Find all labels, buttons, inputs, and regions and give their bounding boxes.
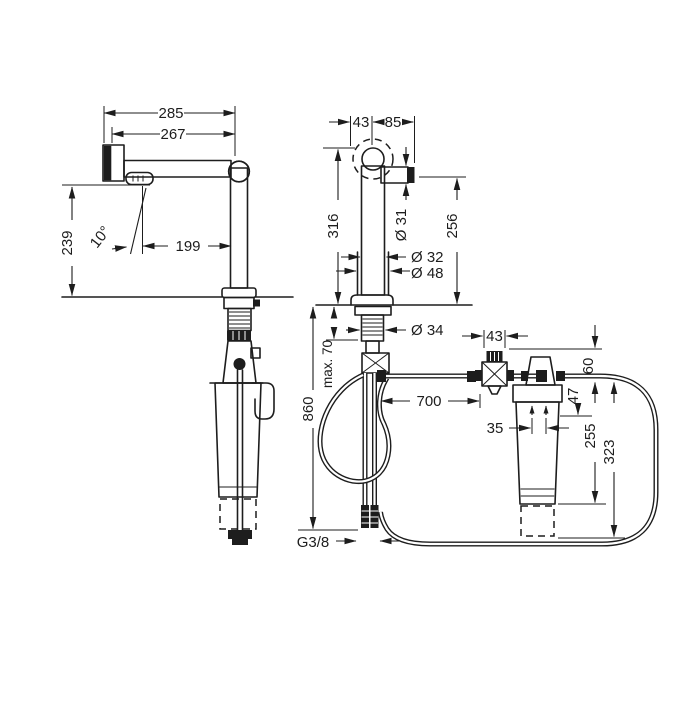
base-flange-side bbox=[222, 288, 256, 298]
faucet-body-front bbox=[362, 166, 385, 295]
filter-unit-drawing: 43 60 47 35 255 323 bbox=[377, 325, 656, 544]
dim-front-body-height: 316 bbox=[325, 213, 342, 238]
dim-filter-total-height: 323 bbox=[601, 439, 618, 464]
hose-loop bbox=[320, 375, 389, 482]
swivel-range-dashed bbox=[353, 139, 393, 179]
technical-drawing-page: 285 267 239 10° 199 bbox=[0, 0, 700, 700]
dim-filter-head-clearance: 60 bbox=[580, 358, 597, 375]
dim-side-total-width: 285 bbox=[158, 105, 183, 122]
dim-filter-valve-width: 43 bbox=[486, 328, 503, 345]
dim-front-spout-projection: 85 bbox=[385, 114, 402, 131]
dim-side-spray-reach: 199 bbox=[175, 238, 200, 255]
front-view-drawing: 43 85 Ø 31 316 256 Ø 32 Ø 48 Ø 34 max. 7… bbox=[297, 114, 480, 551]
undercounter-assembly-side bbox=[210, 298, 274, 546]
holder-hook-side bbox=[252, 383, 274, 419]
base-flange-front bbox=[351, 295, 393, 305]
dim-front-hose-run: 700 bbox=[416, 393, 441, 410]
faucet-spout-arm-side bbox=[124, 161, 231, 178]
dim-side-spray-angle: 10° bbox=[87, 223, 114, 251]
side-view-drawing: 285 267 239 10° 199 bbox=[59, 105, 293, 545]
dim-side-spout-height: 239 bbox=[59, 230, 76, 255]
dim-front-spout-diameter: Ø 31 bbox=[393, 209, 410, 242]
filter-cartridge bbox=[513, 357, 565, 536]
dim-filter-port-spacing: 35 bbox=[487, 420, 504, 437]
dim-side-spout-width: 267 bbox=[160, 126, 185, 143]
dim-front-base-diameter: Ø 48 bbox=[411, 265, 444, 282]
dim-filter-cartridge-height: 255 bbox=[582, 423, 599, 448]
faucet-dimension-diagram: 285 267 239 10° 199 bbox=[0, 0, 700, 700]
dim-front-body-diameter: Ø 32 bbox=[411, 249, 444, 266]
dim-front-hose-length: 860 bbox=[300, 396, 317, 421]
dim-front-swivel-offset: 43 bbox=[353, 114, 370, 131]
dim-front-max-counter: max. 70 bbox=[320, 340, 335, 388]
shutoff-valve bbox=[475, 351, 514, 394]
dim-filter-cap-offset: 47 bbox=[565, 388, 582, 405]
counter-washer bbox=[355, 307, 391, 316]
filter-bottom-dashed bbox=[521, 506, 554, 536]
faucet-body-side bbox=[231, 168, 248, 288]
filter-cap bbox=[513, 385, 562, 402]
dim-front-outlet-height: 256 bbox=[444, 213, 461, 238]
dim-front-thread: G3/8 bbox=[297, 534, 330, 551]
aerator-side bbox=[126, 173, 153, 185]
dim-front-shank-diameter: Ø 34 bbox=[411, 322, 444, 339]
